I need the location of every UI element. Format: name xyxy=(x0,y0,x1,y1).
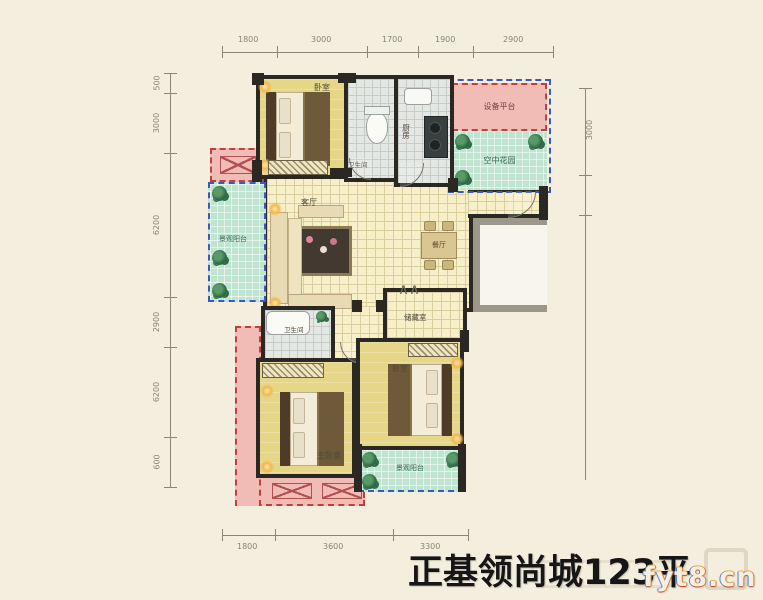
plant-icon xyxy=(362,474,377,489)
bed xyxy=(266,92,276,166)
wall-stub xyxy=(460,330,469,352)
lamp-icon xyxy=(260,460,274,474)
wardrobe xyxy=(262,363,324,378)
dim-tick xyxy=(468,529,469,541)
dim-label: 6200 xyxy=(153,215,161,235)
wall-stub xyxy=(252,160,262,182)
dining-table: 餐厅 xyxy=(421,232,457,259)
master-bedroom-label: 主卧室 xyxy=(317,452,341,460)
wall-stub xyxy=(539,186,548,220)
stove-burner xyxy=(429,122,441,134)
kitchen-sink xyxy=(404,88,432,105)
dim-tick xyxy=(164,347,177,348)
ac-unit-symbol xyxy=(220,156,256,174)
storage-label: 储藏室 xyxy=(404,314,427,322)
stove-burner xyxy=(429,139,441,151)
wall-stub xyxy=(352,300,362,312)
balcony-left-label: 景观阳台 xyxy=(219,236,247,243)
dim-label: 2900 xyxy=(153,312,161,332)
dim-label: 1900 xyxy=(435,36,455,44)
dim-tick xyxy=(579,88,592,89)
equipment-platform: 设备平台 xyxy=(452,83,547,131)
wall-stub xyxy=(458,444,466,492)
lamp-icon xyxy=(268,202,282,216)
dim-label: 6200 xyxy=(153,382,161,402)
rug-flower xyxy=(306,236,313,243)
plant-icon xyxy=(528,134,543,149)
sofa xyxy=(270,212,288,304)
dim-tick xyxy=(473,46,474,58)
wall-stub xyxy=(354,444,362,492)
wall-stub xyxy=(338,73,356,83)
dim-tick xyxy=(277,46,278,58)
dining-chair xyxy=(442,260,454,270)
dim-tick xyxy=(222,529,223,541)
open-door-symbol: ∧∧ xyxy=(398,280,420,298)
rug xyxy=(296,226,352,276)
bed xyxy=(442,364,452,436)
ac-unit-symbol xyxy=(272,483,312,499)
watermark-text: fyt8.cn xyxy=(643,562,757,593)
dim-label: 3000 xyxy=(311,36,331,44)
dim-label: 2900 xyxy=(503,36,523,44)
dim-label: 1800 xyxy=(238,36,258,44)
bathroom-mid-label: 卫生间 xyxy=(284,327,304,334)
dim-tick xyxy=(164,297,177,298)
plant-icon xyxy=(212,283,227,298)
dim-tick xyxy=(164,73,177,74)
bedroom-top-label: 卧室 xyxy=(314,84,330,92)
dim-tick xyxy=(418,46,419,58)
dim-tick xyxy=(222,46,223,58)
bed-pillow xyxy=(279,98,291,124)
bed-pillow xyxy=(293,398,305,424)
wardrobe xyxy=(268,160,328,175)
living-room-label: 客厅 xyxy=(301,199,317,207)
plant-icon xyxy=(316,311,327,322)
dim-tick xyxy=(164,437,177,438)
dining-room-label: 餐厅 xyxy=(432,242,446,249)
kitchen-label: 厨房 xyxy=(402,124,410,139)
bed-pillow xyxy=(293,432,305,458)
wall-stub xyxy=(376,300,386,312)
dim-label: 600 xyxy=(154,454,162,469)
floorplan-canvas: 设备平台 空中花园 景观阳台 景观阳台 卧室 卫生间 厨房 xyxy=(0,0,763,600)
dining-chair xyxy=(424,221,436,231)
wall-stub xyxy=(448,178,458,192)
dim-tick xyxy=(164,93,177,94)
wardrobe xyxy=(408,343,458,357)
plant-icon xyxy=(212,186,227,201)
dim-label: 500 xyxy=(154,75,162,90)
dim-line-top xyxy=(222,52,553,53)
dim-tick xyxy=(579,215,592,216)
equipment-platform-label: 设备平台 xyxy=(484,103,516,111)
wall-stub xyxy=(252,73,264,85)
dim-line-bottom xyxy=(222,535,468,536)
plant-icon xyxy=(212,250,227,265)
bed-pillow xyxy=(426,403,438,428)
dim-tick xyxy=(275,529,276,541)
dim-tick xyxy=(164,153,177,154)
toilet xyxy=(366,112,388,144)
dim-tick xyxy=(164,487,177,488)
bed-pillow xyxy=(426,370,438,395)
wall-stub xyxy=(330,168,352,177)
plant-icon xyxy=(362,452,377,467)
dim-line-left xyxy=(170,73,171,487)
dim-label: 3600 xyxy=(323,543,343,551)
sky-garden-label: 空中花园 xyxy=(484,157,516,165)
dim-tick xyxy=(579,175,592,176)
dim-line-right xyxy=(585,88,586,480)
dim-tick xyxy=(367,46,368,58)
dim-label: 3000 xyxy=(153,113,161,133)
dim-label: 1800 xyxy=(237,543,257,551)
bed-blanket xyxy=(388,364,412,436)
sofa-cushions xyxy=(288,218,302,298)
bedroom-bottom-label: 卧室 xyxy=(392,365,408,373)
exterior-notch xyxy=(473,218,547,312)
dining-chair xyxy=(424,260,436,270)
dim-label: 1700 xyxy=(382,36,402,44)
bed-blanket xyxy=(303,92,330,166)
lamp-icon xyxy=(450,356,464,370)
balcony-bottom-label: 景观阳台 xyxy=(396,465,424,472)
bed xyxy=(280,392,290,466)
lamp-icon xyxy=(260,384,274,398)
bed-pillow xyxy=(279,132,291,158)
dim-tick xyxy=(393,529,394,541)
dim-tick xyxy=(553,46,554,58)
dim-label: 3000 xyxy=(586,120,594,140)
toilet-tank xyxy=(364,106,390,115)
plant-icon xyxy=(455,134,470,149)
dining-chair xyxy=(442,221,454,231)
